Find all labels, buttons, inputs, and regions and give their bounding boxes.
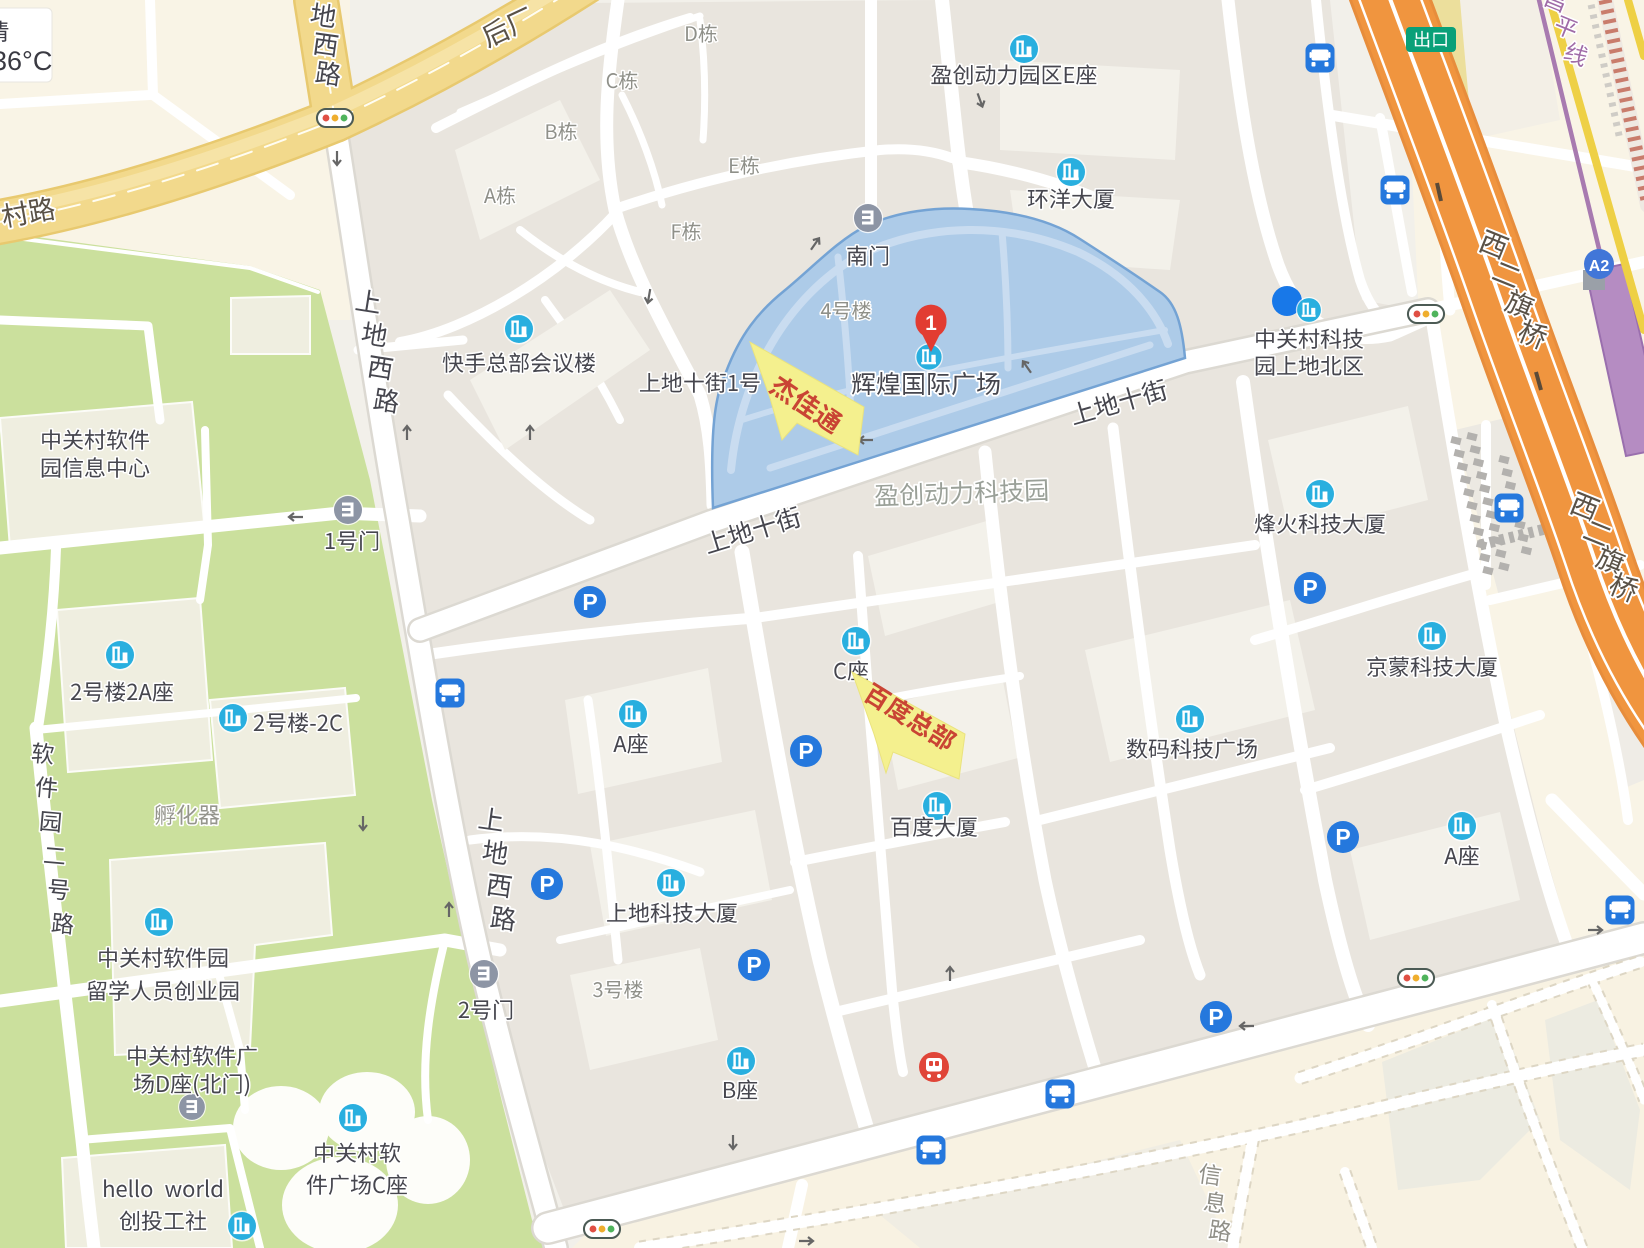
- svg-text:1: 1: [925, 312, 937, 335]
- svg-text:A2: A2: [1589, 258, 1610, 275]
- svg-text:36°C: 36°C: [0, 46, 52, 76]
